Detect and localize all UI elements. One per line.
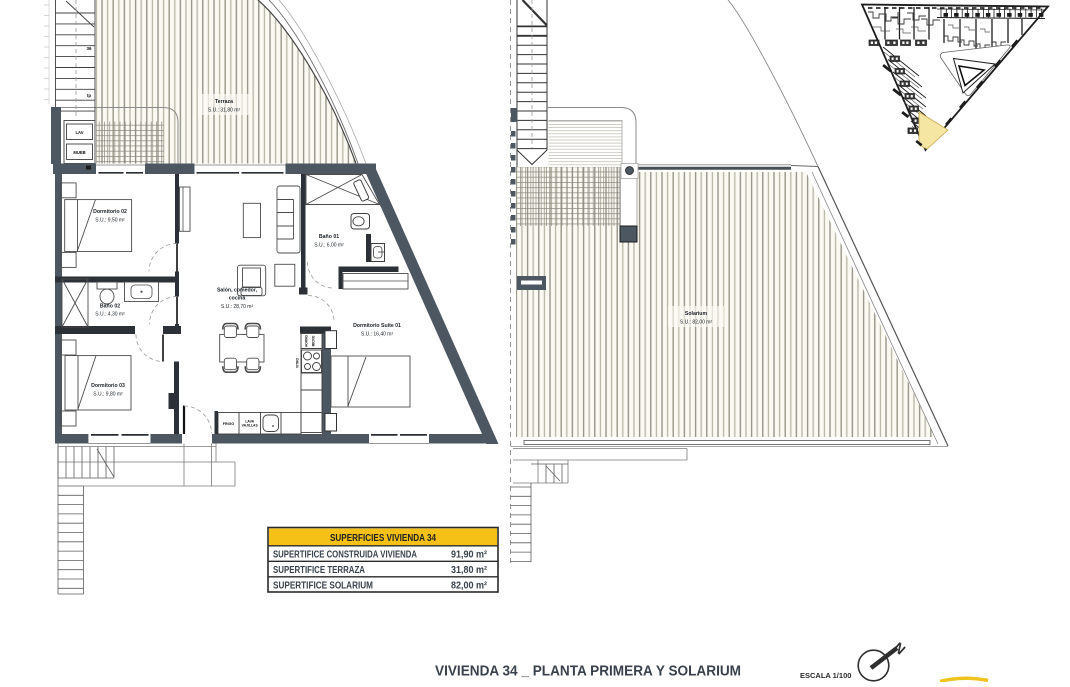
svg-text:VAJILLAS: VAJILLAS: [242, 424, 259, 428]
svg-text:SUPERTIFICE CONSTRUIDA VIVIEND: SUPERTIFICE CONSTRUIDA VIVIENDA: [273, 549, 417, 561]
svg-text:S.U.: 9,50 m²: S.U.: 9,50 m²: [95, 218, 125, 224]
svg-text:Salón, comedor,: Salón, comedor,: [217, 288, 258, 294]
svg-text:S.U.: 31,80 m²: S.U.: 31,80 m²: [208, 108, 241, 114]
svg-text:Dormitorio 03: Dormitorio 03: [91, 383, 125, 389]
svg-text:91,90 m²: 91,90 m²: [451, 549, 487, 561]
svg-text:MICRO: MICRO: [312, 335, 316, 346]
svg-text:tp: tp: [87, 93, 91, 98]
svg-text:FRIGO: FRIGO: [223, 422, 235, 426]
svg-text:Dormitorio Suite 01: Dormitorio Suite 01: [353, 323, 401, 329]
svg-text:SUPERTIFICE TERRAZA: SUPERTIFICE TERRAZA: [273, 564, 365, 576]
svg-text:S.U.: 28,70 m²: S.U.: 28,70 m²: [221, 304, 254, 310]
svg-text:S.U.: 16,40 m²: S.U.: 16,40 m²: [361, 332, 394, 338]
svg-text:VITRO: VITRO: [296, 358, 300, 369]
svg-text:SUPERTIFICE SOLARIUM: SUPERTIFICE SOLARIUM: [273, 580, 373, 592]
svg-text:31,80 m²: 31,80 m²: [451, 564, 487, 576]
svg-text:VIVIENDA 34 _ PLANTA PRIMERA Y: VIVIENDA 34 _ PLANTA PRIMERA Y SOLARIUM: [435, 664, 741, 680]
svg-text:S.U.: 82,00 m²: S.U.: 82,00 m²: [680, 320, 713, 326]
svg-text:Baño 01: Baño 01: [319, 234, 339, 240]
svg-text:SUPERFICIES VIVIENDA 34: SUPERFICIES VIVIENDA 34: [330, 532, 436, 544]
svg-text:Terraza: Terraza: [215, 99, 233, 105]
svg-text:S.U.: 4,30 m²: S.U.: 4,30 m²: [95, 312, 125, 318]
svg-text:36: 36: [86, 46, 92, 51]
svg-text:HORNO: HORNO: [305, 335, 309, 347]
svg-text:82,00 m²: 82,00 m²: [451, 580, 487, 592]
svg-text:MUEB: MUEB: [73, 150, 85, 155]
svg-text:cocina: cocina: [229, 296, 246, 302]
svg-text:LAV: LAV: [75, 130, 83, 135]
svg-text:Dormitorio 02: Dormitorio 02: [93, 209, 127, 215]
svg-text:ESCALA 1/100: ESCALA 1/100: [800, 671, 851, 680]
svg-text:S.U.: 9,80 m²: S.U.: 9,80 m²: [93, 392, 123, 398]
svg-text:Baño 02: Baño 02: [100, 304, 120, 310]
svg-text:S.U.: 6,00 m²: S.U.: 6,00 m²: [314, 243, 344, 249]
svg-text:Solarium: Solarium: [685, 311, 708, 317]
